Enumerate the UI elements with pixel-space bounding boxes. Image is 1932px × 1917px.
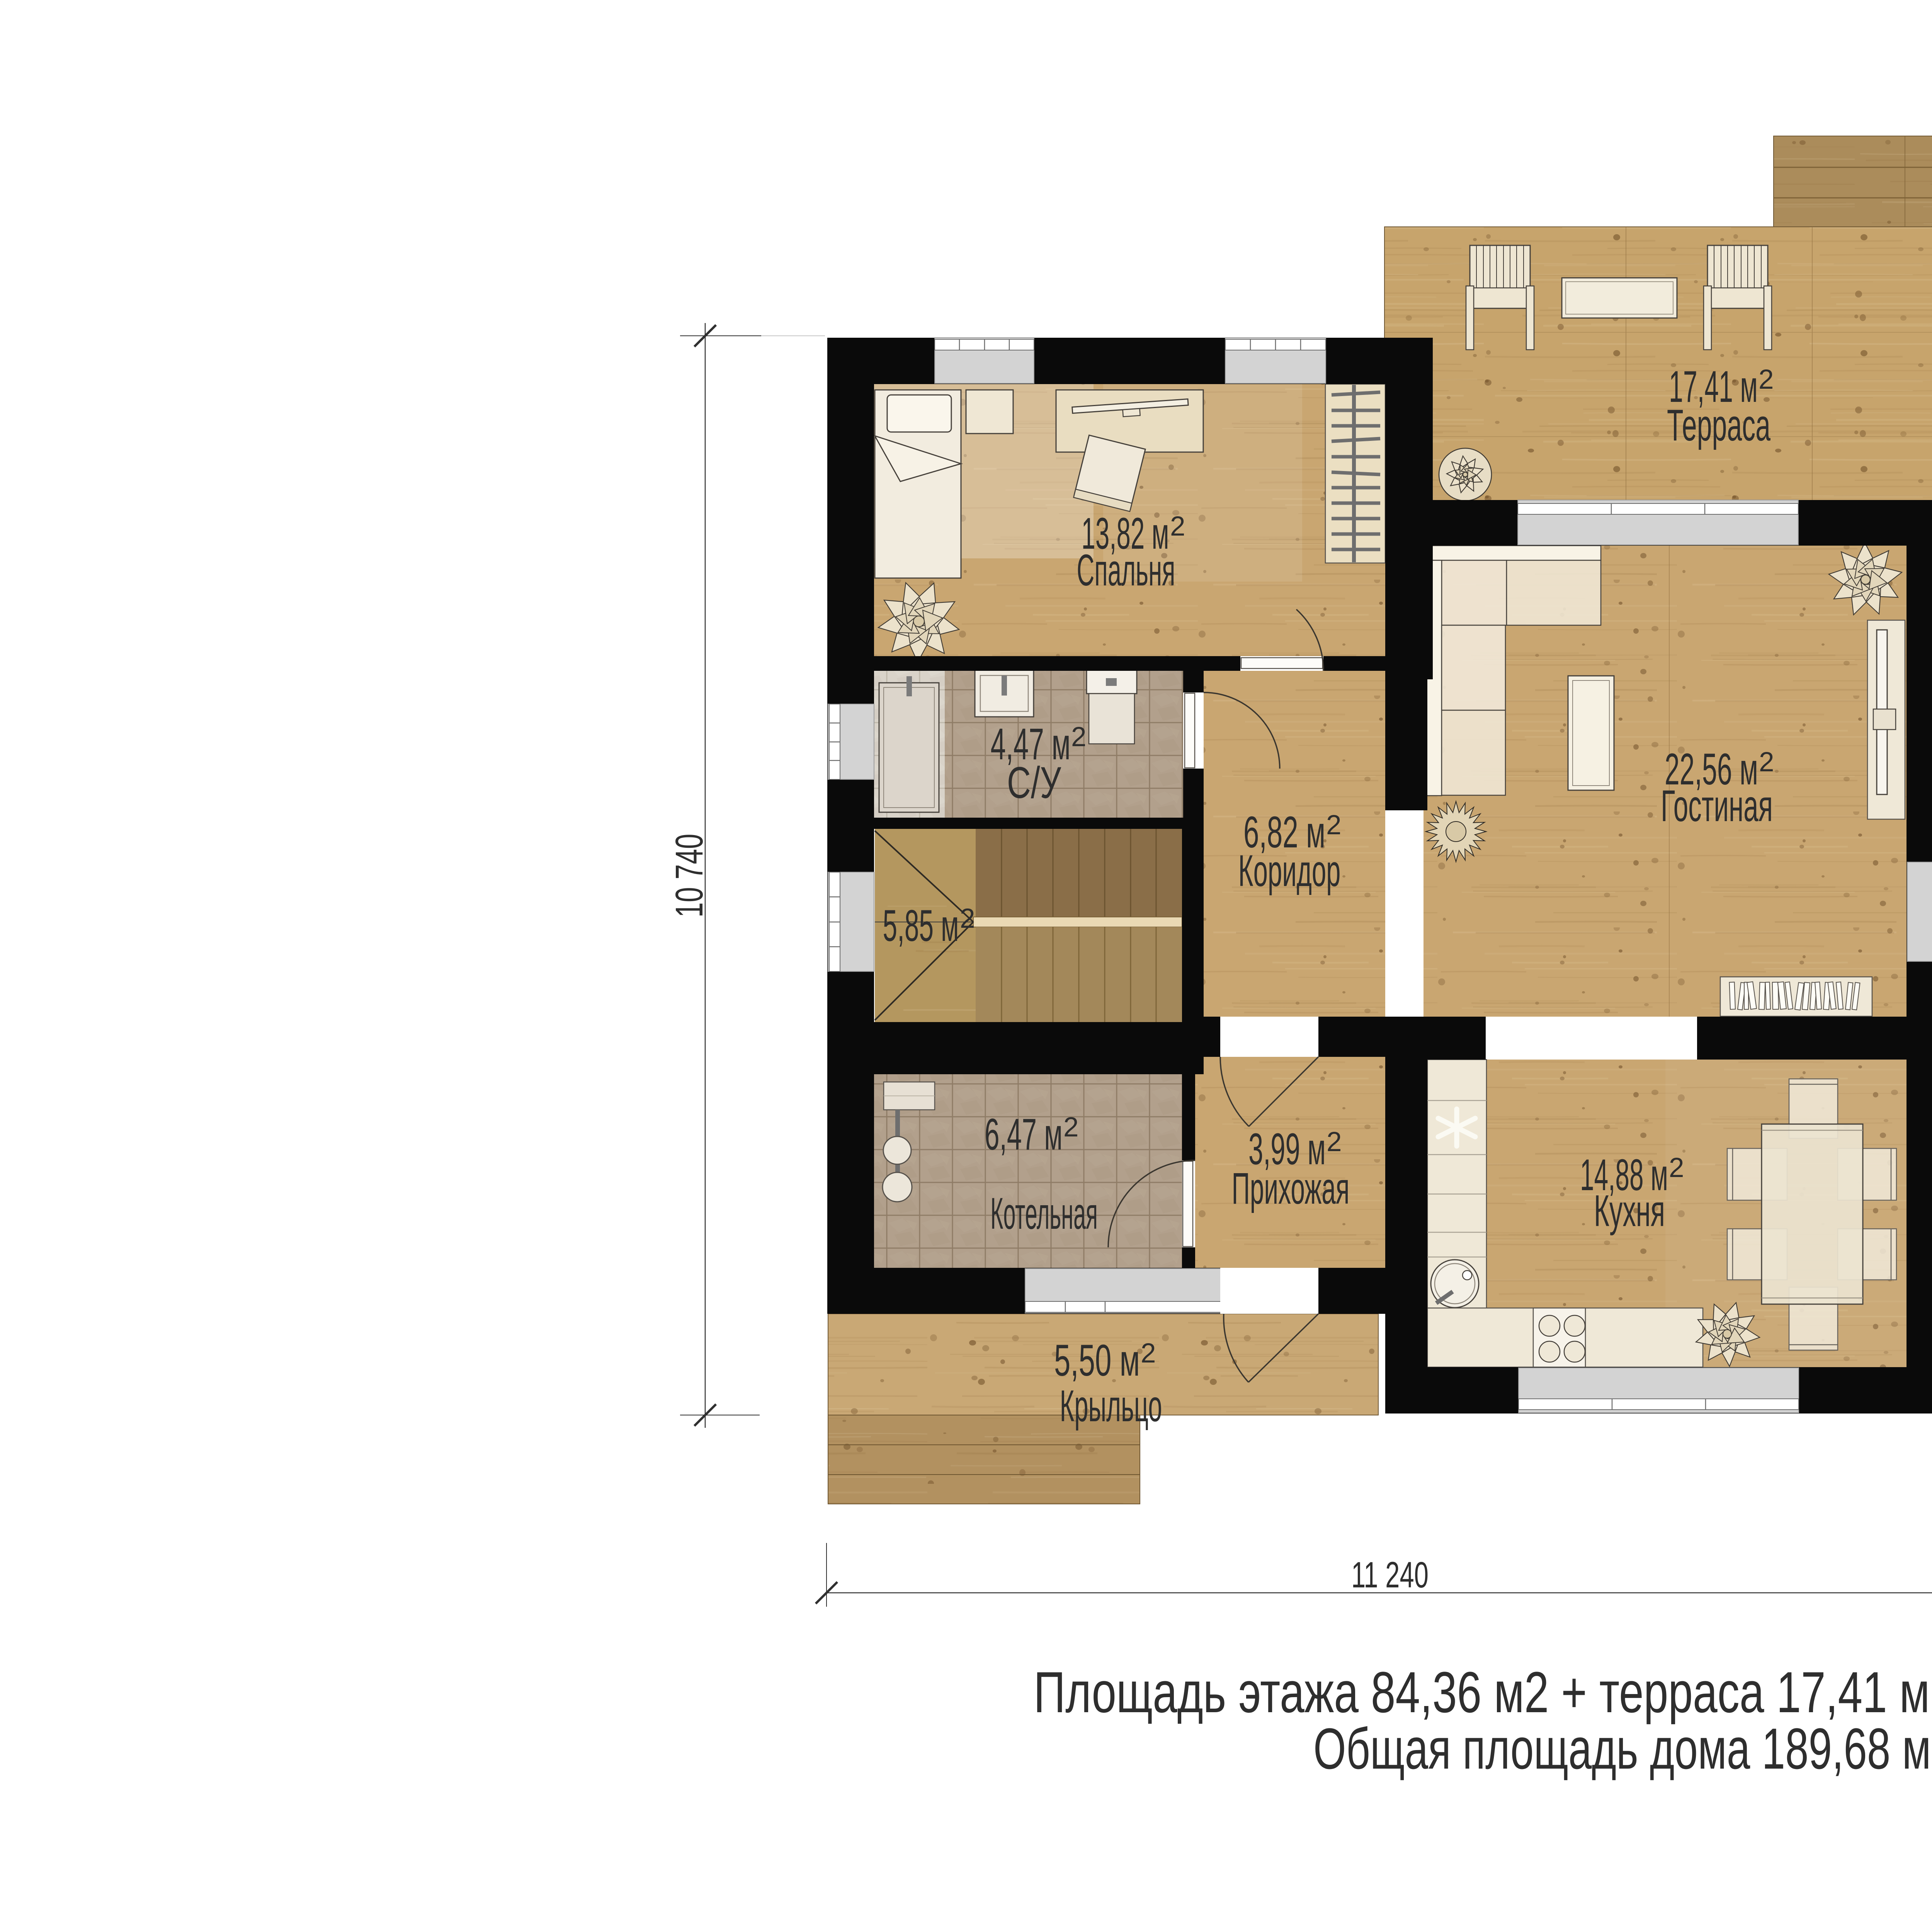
svg-text:2: 2 (1063, 1112, 1079, 1143)
svg-text:Гостиная: Гостиная (1661, 781, 1773, 831)
svg-text:2: 2 (1327, 1127, 1342, 1157)
svg-text:Прихожая: Прихожая (1232, 1164, 1350, 1213)
svg-text:Площадь этажа 84,36 м2 + терра: Площадь этажа 84,36 м2 + терраса 17,41 м… (1034, 1660, 1932, 1725)
svg-text:11 240: 11 240 (1351, 1555, 1429, 1596)
svg-text:Спальня: Спальня (1077, 546, 1175, 595)
svg-text:5,50 м: 5,50 м (1054, 1336, 1140, 1385)
svg-text:Кухня: Кухня (1594, 1186, 1665, 1236)
svg-text:Крыльцо: Крыльцо (1060, 1381, 1162, 1431)
svg-text:6,47 м: 6,47 м (985, 1110, 1063, 1159)
svg-text:Котельная: Котельная (990, 1189, 1098, 1238)
svg-text:2: 2 (960, 903, 975, 934)
svg-text:Коридор: Коридор (1238, 846, 1341, 896)
svg-text:5,85 м: 5,85 м (883, 901, 959, 951)
svg-text:2: 2 (1141, 1338, 1156, 1369)
svg-text:Общая площадь дома 189,68 м2: Общая площадь дома 189,68 м2 (1313, 1716, 1932, 1781)
svg-text:2: 2 (1326, 810, 1342, 840)
svg-text:2: 2 (1170, 511, 1185, 542)
svg-text:2: 2 (1759, 747, 1774, 777)
svg-text:10 740: 10 740 (668, 834, 711, 918)
svg-text:2: 2 (1669, 1153, 1684, 1183)
svg-text:2: 2 (1071, 722, 1087, 752)
svg-text:Терраса: Терраса (1667, 401, 1770, 450)
svg-text:С/У: С/У (1007, 758, 1061, 808)
svg-text:2: 2 (1759, 364, 1774, 395)
